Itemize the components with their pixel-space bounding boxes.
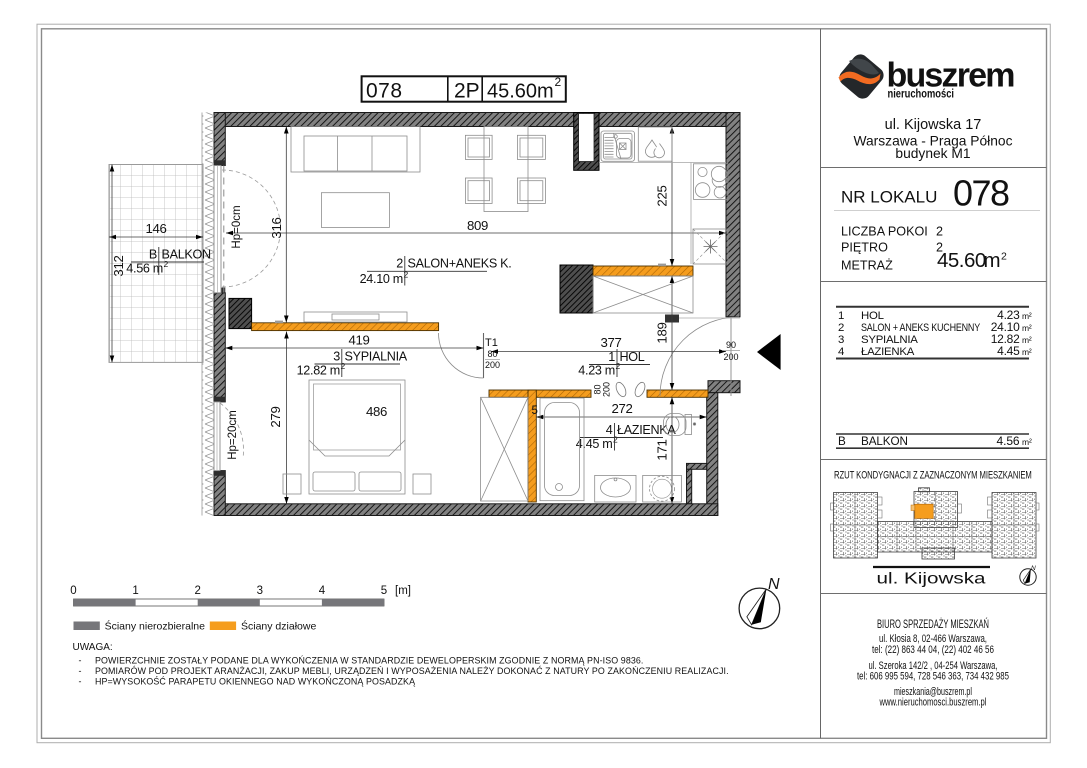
- svg-text:tel: 606 995 594, 728 546 363,: tel: 606 995 594, 728 546 363, 734 432 9…: [857, 671, 1009, 683]
- svg-text:279: 279: [268, 406, 283, 427]
- svg-text:377: 377: [600, 335, 621, 350]
- svg-text:-: -: [78, 677, 81, 687]
- svg-text:PIĘTRO: PIĘTRO: [841, 241, 888, 255]
- svg-text:m²: m²: [1022, 311, 1032, 321]
- svg-text:2P: 2P: [454, 80, 480, 103]
- svg-text:200: 200: [602, 382, 612, 397]
- svg-text:1: 1: [838, 310, 844, 322]
- svg-text:5: 5: [381, 585, 387, 597]
- svg-text:BALKON: BALKON: [162, 248, 211, 262]
- svg-text:225: 225: [655, 185, 670, 206]
- svg-text:N: N: [1031, 565, 1036, 572]
- svg-text:1: 1: [132, 585, 138, 597]
- svg-text:m²: m²: [1022, 347, 1032, 357]
- svg-text:2: 2: [616, 361, 621, 371]
- svg-text:B: B: [838, 435, 846, 448]
- svg-text:2: 2: [613, 435, 618, 445]
- svg-text:tel: (22) 863 44 04, (22) 402: tel: (22) 863 44 04, (22) 402 46 56: [872, 644, 994, 656]
- svg-text:m: m: [984, 249, 1001, 272]
- svg-text:200: 200: [723, 352, 738, 362]
- svg-text:UWAGA:: UWAGA:: [73, 642, 113, 653]
- svg-text:078: 078: [953, 173, 1009, 214]
- svg-text:HP=WYSOKOŚĆ PARAPETU OKIENNEGO: HP=WYSOKOŚĆ PARAPETU OKIENNEGO NAD WYKOŃ…: [95, 676, 415, 687]
- svg-text:4.45 m: 4.45 m: [576, 437, 613, 451]
- svg-text:POWIERZCHNIE ZOSTAŁY PODANE DL: POWIERZCHNIE ZOSTAŁY PODANE DLA WYKOŃCZE…: [95, 656, 644, 666]
- svg-text:2: 2: [1001, 251, 1007, 263]
- svg-text:BIURO SPRZEDAŻY MIESZKAŃ: BIURO SPRZEDAŻY MIESZKAŃ: [877, 618, 989, 631]
- svg-text:272: 272: [611, 401, 632, 416]
- svg-text:ul. Kijowska: ul. Kijowska: [877, 571, 986, 588]
- svg-text:T1: T1: [485, 337, 498, 349]
- svg-text:200: 200: [485, 360, 500, 370]
- svg-text:METRAŻ: METRAŻ: [841, 259, 893, 273]
- svg-text:12.82 m: 12.82 m: [297, 364, 340, 378]
- svg-text:2: 2: [164, 259, 169, 269]
- svg-text:4.23 m: 4.23 m: [578, 364, 615, 378]
- svg-text:SALON+ANEKS K.: SALON+ANEKS K.: [408, 257, 512, 271]
- svg-text:5: 5: [531, 405, 537, 417]
- svg-text:2: 2: [838, 322, 844, 334]
- svg-text:4.56 m: 4.56 m: [126, 262, 163, 276]
- svg-text:ul. Kijowska 17: ul. Kijowska 17: [885, 117, 982, 133]
- svg-text:www.nieruchomosci.buszrem.pl: www.nieruchomosci.buszrem.pl: [879, 697, 987, 709]
- svg-text:0: 0: [70, 585, 76, 597]
- svg-text:146: 146: [145, 221, 166, 236]
- svg-text:90: 90: [726, 340, 736, 350]
- svg-text:POMIARÓW POD PROJEKT ARANŻACJI: POMIARÓW POD PROJEKT ARANŻACJI, ZAKUP ME…: [95, 666, 729, 676]
- svg-text:3: 3: [257, 585, 263, 597]
- svg-text:ŁAZIENKA: ŁAZIENKA: [861, 346, 915, 358]
- svg-text:-: -: [78, 666, 81, 676]
- svg-text:m²: m²: [1022, 437, 1032, 447]
- svg-text:809: 809: [467, 218, 488, 233]
- svg-text:2: 2: [936, 225, 943, 239]
- svg-text:3: 3: [333, 350, 340, 364]
- svg-text:SYPIALNIA: SYPIALNIA: [345, 350, 408, 364]
- svg-text:312: 312: [111, 255, 126, 276]
- svg-text:m²: m²: [1022, 323, 1032, 333]
- svg-text:2: 2: [194, 585, 200, 597]
- svg-text:45.60m: 45.60m: [487, 81, 554, 103]
- svg-text:[m]: [m]: [395, 585, 411, 597]
- svg-text:BALKON: BALKON: [861, 435, 908, 448]
- svg-text:SALON + ANEKS KUCHENNY: SALON + ANEKS KUCHENNY: [861, 322, 981, 334]
- svg-text:316: 316: [269, 217, 284, 238]
- svg-text:3: 3: [838, 334, 844, 346]
- svg-text:4: 4: [838, 346, 844, 358]
- svg-text:nieruchomości: nieruchomości: [888, 87, 955, 101]
- svg-text:LICZBA POKOI: LICZBA POKOI: [841, 225, 928, 239]
- svg-text:Hp=0cm: Hp=0cm: [231, 205, 243, 248]
- svg-text:NR LOKALU: NR LOKALU: [841, 188, 937, 207]
- svg-text:m²: m²: [1022, 335, 1032, 345]
- svg-text:4: 4: [319, 585, 326, 597]
- svg-text:Ściany nierozbieralne: Ściany nierozbieralne: [105, 620, 206, 633]
- svg-text:-: -: [78, 656, 81, 666]
- svg-text:80: 80: [487, 349, 497, 359]
- svg-text:SYPIALNIA: SYPIALNIA: [861, 334, 918, 346]
- svg-text:1: 1: [608, 350, 615, 364]
- svg-text:24.10 m: 24.10 m: [360, 272, 403, 286]
- svg-text:HOL: HOL: [620, 350, 645, 364]
- svg-text:B: B: [149, 248, 157, 262]
- svg-text:HOL: HOL: [861, 310, 884, 322]
- svg-text:419: 419: [348, 333, 369, 348]
- svg-text:078: 078: [366, 80, 403, 103]
- svg-text:4.45: 4.45: [997, 344, 1020, 358]
- svg-text:171: 171: [655, 439, 670, 460]
- svg-text:Hp=20cm: Hp=20cm: [227, 410, 239, 460]
- svg-text:189: 189: [655, 322, 670, 343]
- svg-text:45.60: 45.60: [937, 249, 986, 272]
- svg-text:4: 4: [606, 423, 613, 437]
- svg-text:2: 2: [396, 257, 403, 271]
- svg-text:2: 2: [555, 75, 562, 89]
- svg-text:budynek M1: budynek M1: [895, 146, 970, 161]
- svg-text:486: 486: [366, 404, 387, 419]
- svg-text:RZUT KONDYGNACJI Z ZAZNACZONYM: RZUT KONDYGNACJI Z ZAZNACZONYM MIESZKANI…: [834, 469, 1032, 482]
- svg-text:2: 2: [341, 361, 346, 371]
- svg-text:Ściany działowe: Ściany działowe: [241, 620, 316, 633]
- svg-text:4.56: 4.56: [997, 434, 1020, 448]
- svg-text:N: N: [768, 576, 780, 593]
